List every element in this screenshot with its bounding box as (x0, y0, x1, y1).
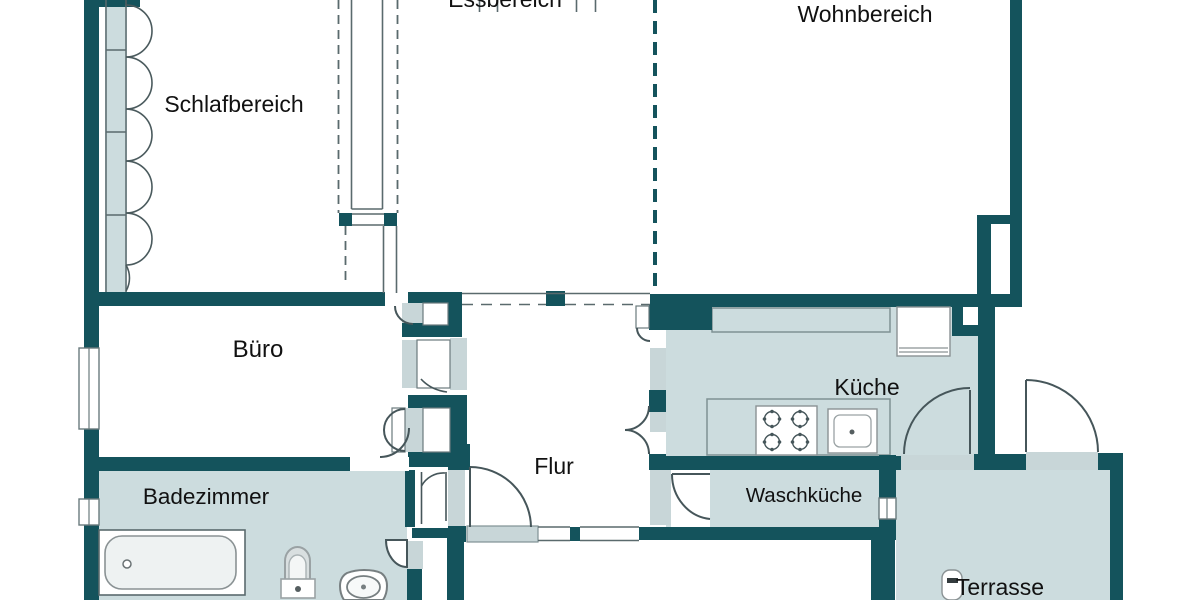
svg-text:Waschküche: Waschküche (746, 484, 863, 507)
svg-text:Terrasse: Terrasse (956, 574, 1044, 600)
svg-text:Schlafbereich: Schlafbereich (164, 91, 303, 117)
svg-text:Büro: Büro (233, 336, 284, 363)
svg-text:Flur: Flur (534, 453, 574, 479)
svg-text:Wohnbereich: Wohnbereich (797, 1, 932, 27)
svg-text:Essbereich: Essbereich (448, 0, 562, 12)
svg-text:Küche: Küche (834, 374, 899, 400)
svg-text:Badezimmer: Badezimmer (143, 484, 270, 509)
